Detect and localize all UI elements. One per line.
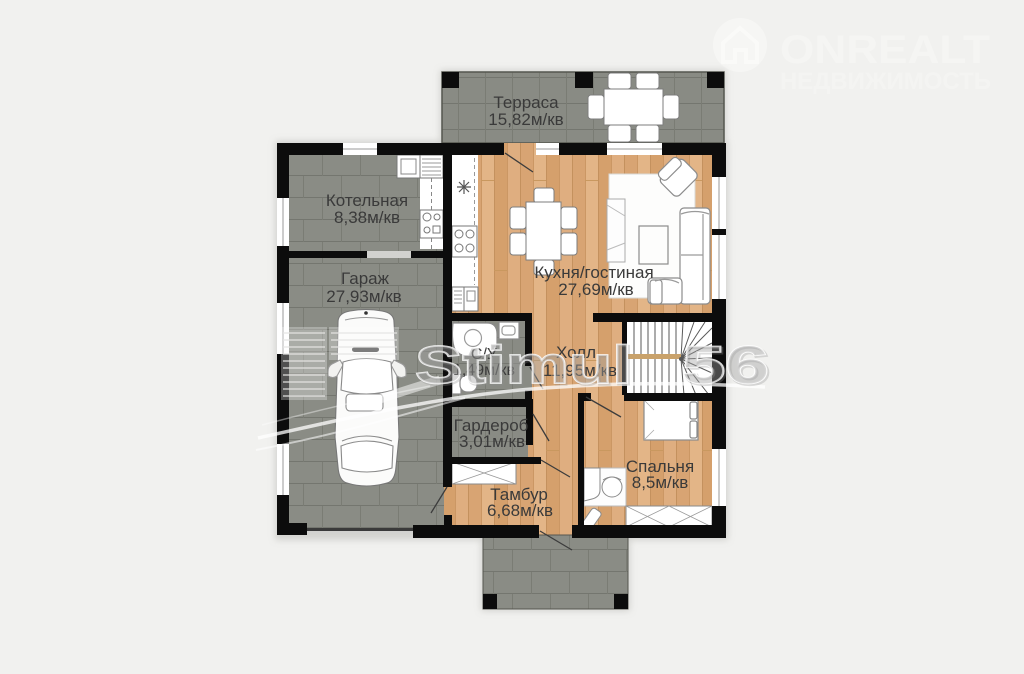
svg-text:ONREALT: ONREALT bbox=[780, 28, 990, 72]
svg-text:6,68м/кв: 6,68м/кв bbox=[487, 501, 553, 520]
svg-text:8,38м/кв: 8,38м/кв bbox=[334, 208, 400, 227]
svg-text:27,69м/кв: 27,69м/кв bbox=[558, 280, 633, 299]
svg-text:3,01м/кв: 3,01м/кв bbox=[459, 432, 525, 451]
svg-text:Гараж: Гараж bbox=[341, 269, 390, 288]
svg-text:НЕДВИЖИМОСТЬ: НЕДВИЖИМОСТЬ bbox=[780, 68, 991, 95]
svg-text:27,93м/кв: 27,93м/кв bbox=[326, 287, 401, 306]
svg-text:8,5м/кв: 8,5м/кв bbox=[632, 473, 689, 492]
svg-text:Stimul: Stimul bbox=[415, 336, 632, 395]
svg-text:56: 56 bbox=[682, 336, 769, 395]
svg-text:15,82м/кв: 15,82м/кв bbox=[488, 110, 563, 129]
